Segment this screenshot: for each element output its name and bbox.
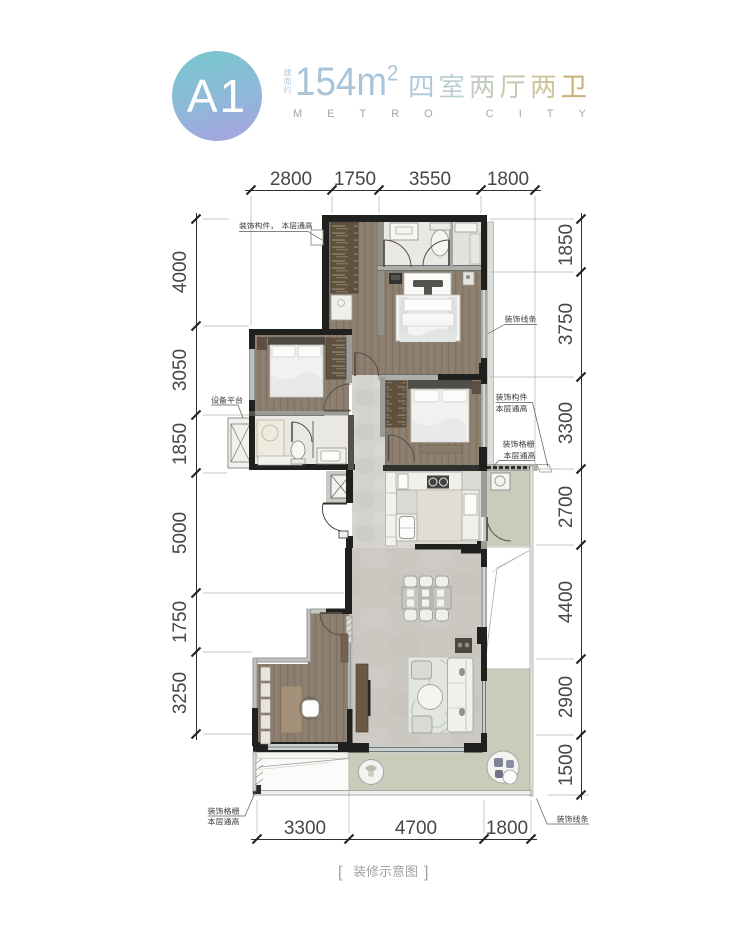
svg-text:3550: 3550 [409,169,451,190]
svg-text:3250: 3250 [170,672,191,714]
svg-text:3750: 3750 [556,303,577,345]
svg-text:1800: 1800 [487,169,529,190]
svg-text:2700: 2700 [556,486,577,528]
svg-text:1750: 1750 [334,169,376,190]
svg-text:3300: 3300 [556,402,577,444]
svg-text:1500: 1500 [556,744,577,786]
svg-text:2800: 2800 [270,169,312,190]
svg-text:1850: 1850 [170,423,191,465]
svg-text:4700: 4700 [395,818,437,839]
svg-text:3050: 3050 [170,349,191,391]
svg-text:1800: 1800 [486,818,528,839]
svg-text:1850: 1850 [556,224,577,266]
svg-text:5000: 5000 [170,512,191,554]
svg-text:2900: 2900 [556,676,577,718]
svg-text:3300: 3300 [284,818,326,839]
svg-text:[: [ [338,864,343,881]
svg-text:4400: 4400 [556,581,577,623]
svg-text:1750: 1750 [170,601,191,643]
svg-text:]: ] [424,864,428,881]
svg-text:4000: 4000 [170,251,191,293]
